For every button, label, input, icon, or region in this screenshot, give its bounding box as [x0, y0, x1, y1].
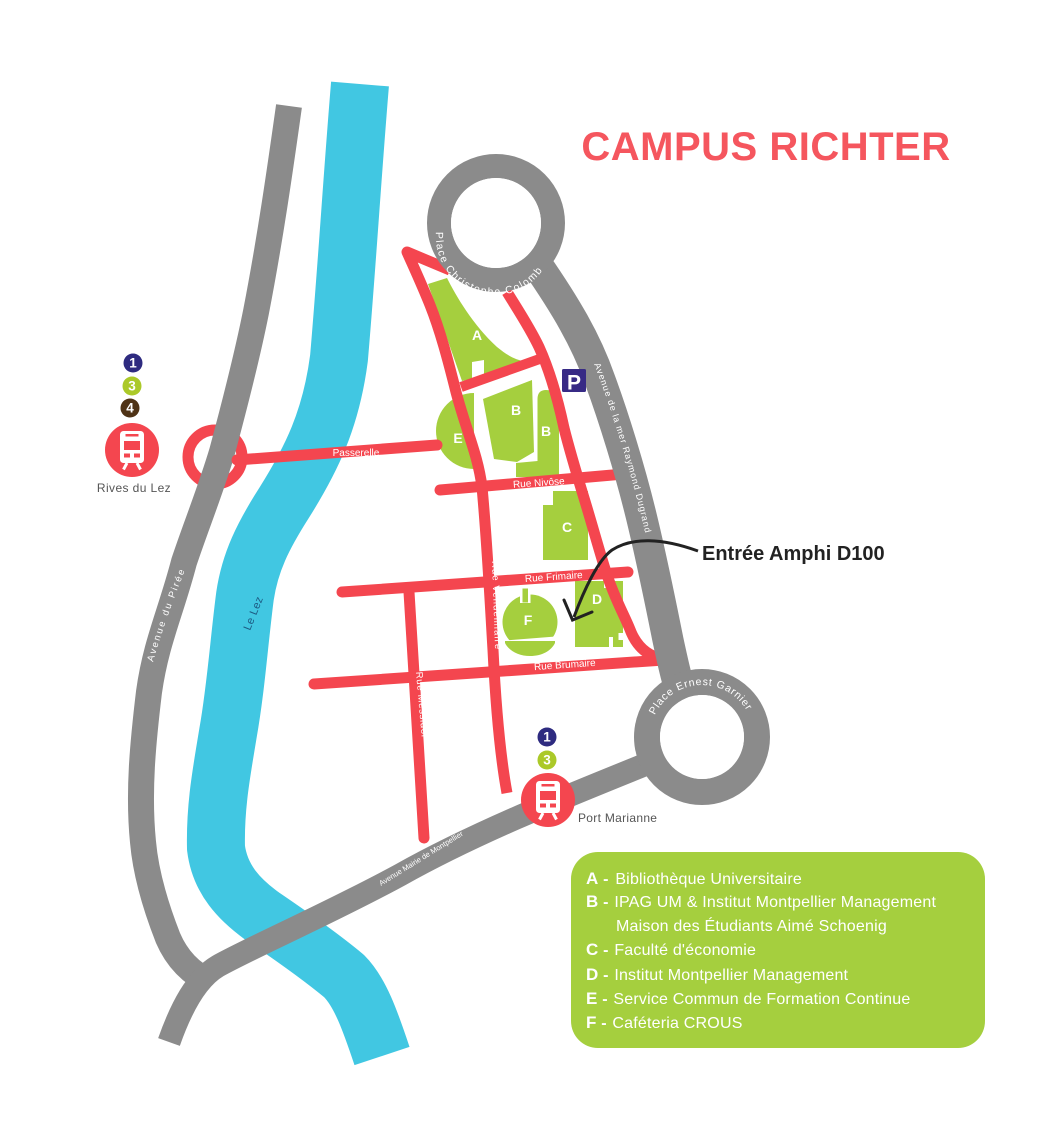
svg-text:D: D	[592, 591, 602, 607]
svg-text:A - Bibliothèque Universitaire: A - Bibliothèque Universitaire	[586, 869, 802, 888]
svg-text:3: 3	[128, 379, 136, 394]
svg-text:Port Marianne: Port Marianne	[578, 811, 657, 825]
svg-text:C: C	[562, 519, 572, 535]
svg-text:CAMPUS RICHTER: CAMPUS RICHTER	[581, 125, 950, 169]
svg-text:1: 1	[129, 356, 137, 371]
svg-text:D - Institut Montpellier Manag: D - Institut Montpellier Management	[586, 965, 849, 984]
svg-text:E - Service Commun de Formatio: E - Service Commun de Formation Continue	[586, 989, 910, 1008]
svg-text:F - Caféteria CROUS: F - Caféteria CROUS	[586, 1013, 743, 1032]
svg-text:B - IPAG UM & Institut Montpel: B - IPAG UM & Institut Montpellier Manag…	[586, 892, 936, 911]
svg-text:B: B	[511, 402, 521, 418]
svg-text:Rue Frimaire: Rue Frimaire	[525, 570, 584, 585]
svg-text:Avenue de la mer Raymond Dugra: Avenue de la mer Raymond Dugrand	[592, 361, 653, 534]
svg-text:Rue Brumaire: Rue Brumaire	[534, 658, 597, 673]
svg-text:E: E	[453, 430, 462, 446]
svg-text:P: P	[567, 372, 581, 395]
svg-text:F: F	[524, 612, 533, 628]
svg-text:Passerelle: Passerelle	[333, 448, 380, 459]
svg-text:Entrée Amphi D100: Entrée Amphi D100	[702, 543, 885, 565]
svg-text:C - Faculté d'économie: C - Faculté d'économie	[586, 940, 756, 959]
svg-text:B: B	[541, 423, 551, 439]
svg-text:A: A	[472, 327, 482, 343]
svg-text:1: 1	[543, 730, 551, 745]
svg-text:Maison des Étudiants Aimé Scho: Maison des Étudiants Aimé Schoenig	[616, 916, 887, 935]
svg-text:3: 3	[543, 753, 551, 768]
svg-text:4: 4	[126, 401, 134, 416]
svg-text:Rue Nivôse: Rue Nivôse	[513, 476, 566, 491]
svg-text:Rives du Lez: Rives du Lez	[97, 481, 171, 495]
